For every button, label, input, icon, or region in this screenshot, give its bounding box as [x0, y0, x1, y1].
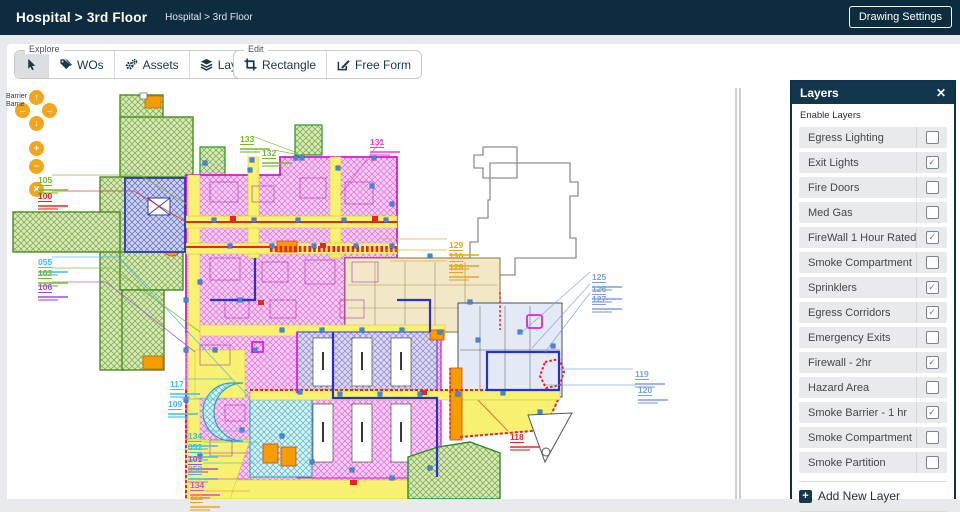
layer-row-hazard-area: Hazard Area [799, 377, 947, 398]
layer-checkbox[interactable]: ✓ [926, 306, 939, 319]
plan-label-number: 053 [188, 465, 202, 475]
plan-label-109: 109 [168, 395, 198, 418]
plan-label-number: 128 [449, 263, 463, 273]
layer-name: FireWall 1 Hour Rated [799, 232, 916, 244]
plan-reference-line [736, 88, 740, 499]
layer-check-area [916, 452, 947, 473]
plan-label-number: 105 [38, 176, 52, 186]
layer-check-area [916, 252, 947, 273]
layer-row-firewall-1-hour-rated: FireWall 1 Hour Rated✓ [799, 227, 947, 248]
toolbar-group-label: Explore [25, 44, 64, 54]
layer-name: Egress Corridors [799, 307, 916, 319]
add-new-layer-label: Add New Layer [818, 489, 900, 503]
layers-icon [200, 58, 213, 71]
toolbar-button-label: WOs [77, 58, 104, 72]
layer-row-fire-doors: Fire Doors [799, 177, 947, 198]
layer-row-smoke-compartment: Smoke Compartment [799, 252, 947, 273]
layer-check-area: ✓ [916, 152, 947, 173]
layer-check-area [916, 377, 947, 398]
layer-row-sprinklers: Sprinklers✓ [799, 277, 947, 298]
free-form-tool-button[interactable]: Free Form [326, 51, 421, 78]
layer-row-smoke-barrier-1-hr: Smoke Barrier - 1 hr✓ [799, 402, 947, 423]
plan-label-118: 118 [510, 428, 540, 451]
plus-icon: + [34, 144, 39, 153]
layer-checkbox[interactable] [926, 206, 939, 219]
page-title: Hospital > 3rd Floor [16, 10, 147, 25]
arrow-up-icon: ↑ [34, 93, 39, 102]
rectangle-tool-button[interactable]: Rectangle [234, 51, 326, 78]
plan-label-127: 127 [592, 290, 622, 313]
plan-label-number: 111 [190, 493, 203, 503]
layer-row-med-gas: Med Gas [799, 202, 947, 223]
pan-down-button[interactable]: ↓ [29, 116, 44, 131]
plan-label-number: 131 [370, 138, 384, 148]
gears-icon [125, 58, 138, 71]
layer-row-smoke-partition: Smoke Partition [799, 452, 947, 473]
plus-square-icon: + [799, 490, 812, 503]
layer-check-area: ✓ [916, 352, 947, 373]
layer-check-area [916, 202, 947, 223]
breadcrumb: Hospital > 3rd Floor [165, 12, 253, 23]
layer-checkbox[interactable] [926, 431, 939, 444]
toolbar-button-label: Assets [143, 58, 179, 72]
toolbar-group-edit: EditRectangleFree Form [233, 50, 422, 79]
layer-row-exit-lights: Exit Lights✓ [799, 152, 947, 173]
tags-icon [59, 58, 72, 71]
layer-name: Exit Lights [799, 157, 916, 169]
layer-name: Sprinklers [799, 282, 916, 294]
layer-check-area: ✓ [916, 277, 947, 298]
plan-label-131: 131 [370, 133, 400, 156]
layer-name: Smoke Barrier - 1 hr [799, 407, 916, 419]
plan-outline-building [470, 147, 578, 275]
crop-icon [244, 58, 257, 71]
layer-row-emergency-exits: Emergency Exits [799, 327, 947, 348]
plan-label-number: 117 [170, 380, 184, 390]
pan-up-button[interactable]: ↑ [29, 90, 44, 105]
arrow-down-icon: ↓ [34, 119, 39, 128]
layer-check-area [916, 427, 947, 448]
layer-row-firewall-2hr: Firewall - 2hr✓ [799, 352, 947, 373]
plan-blue-region [125, 178, 185, 252]
minus-icon: − [34, 162, 39, 171]
layers-panel-title: Layers [800, 86, 839, 100]
plan-label-111: 111 [190, 488, 220, 511]
enable-layers-label: Enable Layers [800, 110, 947, 121]
toolbar-group-label: Edit [244, 44, 268, 54]
layers-panel-body: Enable Layers Egress LightingExit Lights… [792, 104, 954, 512]
plan-label-number: 106 [38, 283, 52, 293]
layer-checkbox[interactable] [926, 181, 939, 194]
layer-row-egress-lighting: Egress Lighting [799, 127, 947, 148]
edit-icon [337, 58, 350, 71]
layer-check-area [916, 327, 947, 348]
app-header: Hospital > 3rd Floor Hospital > 3rd Floo… [0, 0, 960, 35]
plan-label-100: 100 [38, 187, 68, 210]
plan-label-number: 127 [592, 295, 606, 305]
plan-barrier-label: Barrier Barrie [6, 93, 27, 110]
layer-checkbox[interactable]: ✓ [926, 231, 939, 244]
app: Hospital > 3rd Floor Hospital > 3rd Floo… [0, 0, 960, 499]
assets-tool-button[interactable]: Assets [114, 51, 189, 78]
layer-checkbox[interactable]: ✓ [926, 156, 939, 169]
plan-label-120: 120 [638, 381, 668, 404]
layer-checkbox[interactable] [926, 131, 939, 144]
layer-checkbox[interactable] [926, 256, 939, 269]
layer-check-area: ✓ [916, 302, 947, 323]
select-tool-button[interactable] [15, 51, 48, 78]
layer-name: Firewall - 2hr [799, 357, 916, 369]
layers-panel-header: Layers ✕ [792, 82, 954, 104]
arrow-right-icon: → [45, 106, 54, 115]
layer-checkbox[interactable] [926, 381, 939, 394]
layer-name: Smoke Compartment [799, 257, 916, 269]
divider [799, 481, 947, 482]
plan-label-number: 118 [510, 433, 524, 443]
layer-checkbox[interactable] [926, 456, 939, 469]
plan-label-number: 132 [262, 149, 276, 159]
plan-label-128: 128 [449, 258, 479, 281]
layer-check-area [916, 127, 947, 148]
toolbar-button-label: Free Form [355, 58, 411, 72]
wos-tool-button[interactable]: WOs [48, 51, 114, 78]
layer-checkbox[interactable]: ✓ [926, 281, 939, 294]
layer-name: Smoke Compartment [799, 432, 916, 444]
layer-check-area: ✓ [916, 402, 947, 423]
plan-label-number: 109 [168, 400, 182, 410]
layer-name: Egress Lighting [799, 132, 916, 144]
layer-name: Hazard Area [799, 382, 916, 394]
plan-label-132: 132 [262, 144, 292, 167]
layers-panel: Layers ✕ Enable Layers Egress LightingEx… [790, 80, 956, 499]
close-icon[interactable]: ✕ [936, 86, 946, 100]
drawing-settings-button[interactable]: Drawing Settings [849, 6, 952, 28]
add-new-layer-button[interactable]: + Add New Layer [799, 489, 947, 503]
layer-checkbox[interactable]: ✓ [926, 356, 939, 369]
layer-row-smoke-compartment: Smoke Compartment [799, 427, 947, 448]
layer-name: Med Gas [799, 207, 916, 219]
plan-label-number: 119 [635, 370, 649, 380]
zoom-in-button[interactable]: + [29, 141, 44, 156]
plan-label-106: 106 [38, 278, 68, 301]
plan-label-number: 100 [38, 192, 52, 202]
plan-label-number: 133 [240, 135, 254, 145]
layer-name: Emergency Exits [799, 332, 916, 344]
plan-label-number: 120 [638, 386, 652, 396]
layer-checkbox[interactable] [926, 331, 939, 344]
plan-lavender-block [297, 332, 437, 393]
layer-checkbox[interactable]: ✓ [926, 406, 939, 419]
layer-check-area [916, 177, 947, 198]
layer-name: Smoke Partition [799, 457, 916, 469]
layer-row-egress-corridors: Egress Corridors✓ [799, 302, 947, 323]
layer-name: Fire Doors [799, 182, 916, 194]
layer-check-area: ✓ [916, 227, 947, 248]
cursor-icon [25, 58, 38, 71]
toolbar-button-label: Rectangle [262, 58, 316, 72]
pan-right-button[interactable]: → [42, 103, 57, 118]
